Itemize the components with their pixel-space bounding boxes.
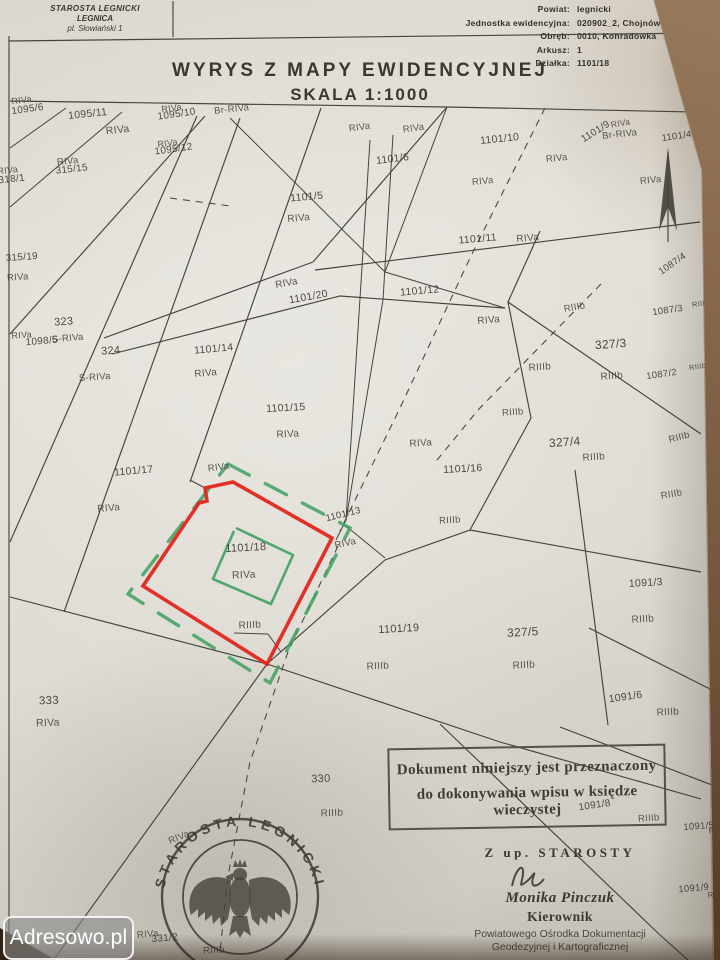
signature-org-line2: Geodezyjnej i Kartograficznej: [405, 941, 715, 953]
map-label: 1101/19: [378, 622, 420, 636]
map-label: 324: [101, 344, 121, 357]
map-label: RIVa: [348, 121, 371, 135]
map-label: 323: [54, 315, 74, 328]
highlight-sketch: [213, 528, 293, 604]
map-label: 1101/13: [325, 505, 362, 524]
map-label: RIVa: [274, 276, 298, 291]
map-label: RIVa: [207, 461, 230, 475]
map-label: RIVa: [97, 502, 121, 515]
map-label: RIVa: [137, 928, 160, 941]
watermark-badge: Adresowo.pl: [3, 916, 134, 960]
eagle-icon: [189, 859, 290, 938]
map-label: 1101/17: [114, 463, 154, 478]
map-label: RIVa: [194, 367, 218, 380]
map-label: RIVa: [105, 123, 130, 137]
map-label: RIIIb: [600, 370, 623, 383]
map-label: RIVa: [232, 568, 256, 581]
map-label: RIVa: [545, 152, 568, 165]
map-label: RIIIb: [563, 300, 586, 315]
map-label: 1101/11: [458, 231, 497, 246]
map-label: 1101/12: [400, 283, 440, 298]
map-label: RIVa: [36, 717, 60, 730]
map-label: 1101/14: [194, 341, 234, 356]
map-label: 327/4: [549, 434, 581, 450]
map-labels: RIVa1095/61095/11RIVaRIVa1095/10Br-RIVaR…: [0, 94, 720, 957]
map-label: 1095/11: [68, 106, 108, 122]
map-label: 1101/16: [443, 462, 483, 476]
map-label: RIIIb: [203, 944, 225, 956]
map-label: 331/2: [151, 932, 179, 945]
map-label: RIIIb: [582, 451, 605, 464]
map-label: 315/15: [55, 162, 88, 176]
legal-stamp-line2: do dokonywania wpisu w księdze wieczyste…: [390, 783, 665, 822]
map-label: 1101/10: [480, 131, 520, 147]
map-label: RIVa: [409, 437, 433, 450]
map-label: RIIIb: [439, 514, 461, 526]
map-label: 333: [39, 695, 60, 708]
map-label: RIVa: [516, 232, 540, 245]
map-label: 1101/6: [375, 151, 409, 167]
map-label: 1101/5: [290, 190, 324, 205]
map-label: 315/19: [5, 251, 38, 264]
legal-stamp-line1: Dokument niniejszy jest przeznaczony: [390, 758, 664, 780]
map-label: 330: [311, 773, 331, 786]
map-label: RIVa: [7, 271, 30, 284]
map-label: RIVa: [471, 175, 494, 188]
map-label: S-RIVa: [52, 332, 85, 346]
map-label: RIVa: [287, 212, 311, 225]
map-label: RIIIb: [320, 808, 343, 820]
paper-edge-shadow: [650, 0, 720, 960]
map-label: RIVa: [477, 314, 501, 327]
map-label: RIVa: [276, 428, 299, 440]
map-label: Br-RIVa: [214, 102, 251, 117]
map-label: 327/5: [507, 624, 539, 640]
map-label: S-RIVa: [79, 371, 112, 384]
map-label: RIVa: [402, 122, 425, 136]
map-label: RIIIb: [512, 659, 535, 671]
photo-background: { "header": { "office_line1": "STAROSTA …: [0, 0, 720, 960]
map-label: RIIIb: [366, 660, 389, 672]
map-label: 1101/15: [266, 401, 306, 415]
map-label: RIIIb: [528, 361, 551, 374]
paper-document: STAROSTA LEGNICKI LEGNICA pl. Słowiański…: [0, 0, 720, 960]
map-label: 1101/18: [225, 541, 267, 555]
map-label: 318/1: [0, 173, 26, 187]
map-label: RIIIb: [502, 406, 524, 418]
legal-stamp-box: Dokument niniejszy jest przeznaczony do …: [387, 744, 666, 831]
map-label: RIVa: [689, 119, 709, 131]
map-label: 1091/6: [608, 689, 643, 706]
map-label: 327/3: [595, 336, 627, 352]
map-label: RIIIb: [238, 619, 261, 631]
